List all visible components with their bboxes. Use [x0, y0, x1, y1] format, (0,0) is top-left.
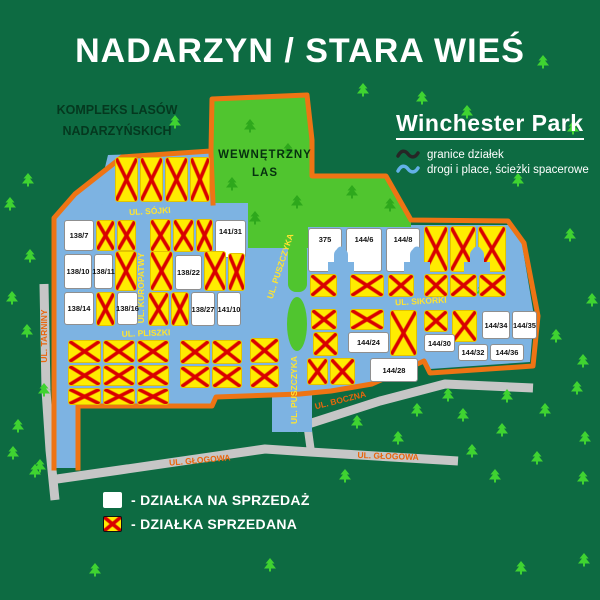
tree-icon [550, 329, 562, 343]
tree-icon [357, 83, 369, 97]
plot-sold [150, 219, 171, 252]
page-title: NADARZYN / STARA WIEŚ [0, 32, 600, 71]
tree-icon [416, 91, 428, 105]
plot-sold [424, 310, 448, 332]
estate-map: 138/7141/31138/10138/11138/22138/14138/1… [0, 0, 600, 600]
plot-138-7: 138/7 [64, 220, 94, 251]
plot-sold [478, 226, 506, 272]
tree-icon [457, 408, 469, 422]
plot-144-28: 144/28 [370, 358, 418, 382]
park-name: Winchester Park [396, 110, 584, 140]
tree-icon [22, 173, 34, 187]
plot-144-24: 144/24 [348, 332, 389, 353]
plot-sold [165, 157, 188, 202]
legend-boundaries-label: granice działek [427, 149, 504, 161]
plot-sold [350, 274, 384, 297]
plot-sold [250, 338, 279, 363]
sold-swatch [103, 516, 122, 532]
plot-sold [212, 366, 242, 388]
plot-sold [115, 251, 137, 291]
plot-sold [148, 292, 169, 326]
plot-sold [479, 274, 506, 297]
plot-sold [68, 388, 101, 405]
plot-144-35: 144/35 [512, 311, 537, 339]
plot-144-8: 144/8 [386, 228, 420, 272]
forest-complex-label: KOMPLEKS LASÓW NADARZYŃSKICH [22, 100, 212, 143]
tree-icon [411, 403, 423, 417]
plot-sold [68, 365, 101, 386]
tree-icon [351, 415, 363, 429]
tree-icon [12, 419, 24, 433]
plot-sold [450, 274, 477, 297]
sold-label: - DZIAŁKA SPRZEDANA [131, 516, 297, 532]
plot-sold [140, 157, 163, 202]
plot-sold [388, 274, 414, 297]
tree-icon [579, 431, 591, 445]
tree-icon [264, 558, 276, 572]
tree-icon [24, 249, 36, 263]
plot-138-10: 138/10 [64, 254, 92, 289]
plot-sold [330, 358, 355, 385]
plot-144-30: 144/30 [424, 334, 455, 352]
plot-sold [307, 358, 328, 385]
plot-sold [350, 309, 384, 330]
tree-icon [539, 403, 551, 417]
plot-sold [137, 340, 169, 363]
legend-row-boundaries: granice działek [396, 149, 596, 161]
plot-sold [311, 309, 337, 330]
plot-sold [96, 220, 115, 251]
plot-sold [103, 388, 135, 405]
plot-sold [228, 253, 245, 291]
plot-sold [171, 292, 189, 326]
tree-icon [442, 388, 454, 402]
plot-sold [390, 310, 417, 356]
plot-138-14: 138/14 [64, 292, 94, 325]
plot-sold [452, 310, 477, 342]
plot-sold [204, 251, 226, 291]
plot-144-6: 144/6 [346, 228, 382, 272]
park-legend-panel: Winchester Park granice działek drogi i … [396, 110, 596, 179]
plot-sold [96, 292, 115, 326]
tree-icon [89, 563, 101, 577]
tree-icon [466, 444, 478, 458]
plot-sold [180, 366, 210, 388]
tree-icon [4, 197, 16, 211]
plot-144-36: 144/36 [490, 344, 524, 361]
plot-138-11: 138/11 [94, 254, 113, 289]
plot-sold [212, 340, 242, 364]
tree-icon [578, 553, 590, 567]
tree-icon [339, 469, 351, 483]
plot-138-27: 138/27 [191, 292, 215, 326]
tree-icon [531, 451, 543, 465]
tree-icon [515, 561, 527, 575]
plot-144-32: 144/32 [458, 344, 488, 361]
tree-icon [564, 228, 576, 242]
boundary-squiggle-icon [396, 149, 420, 161]
plot-sold [313, 332, 338, 356]
plot-sold [250, 365, 279, 388]
tree-icon [6, 291, 18, 305]
legend-sold-row: - DZIAŁKA SPRZEDANA [103, 516, 310, 532]
tree-icon [577, 354, 589, 368]
plot-sold [137, 365, 169, 386]
plot-375: 375 [308, 228, 342, 272]
plot-sold [424, 274, 448, 297]
bottom-legend: - DZIAŁKA NA SPRZEDAŻ - DZIAŁKA SPRZEDAN… [103, 492, 310, 540]
legend-row-roads: drogi i place, ścieżki spacerowe [396, 164, 596, 176]
plot-sold [103, 365, 135, 386]
plot-sold [173, 219, 194, 252]
plot-sold [310, 274, 337, 297]
tree-icon [577, 471, 589, 485]
plot-sold [150, 251, 173, 291]
tree-icon [586, 293, 598, 307]
for-sale-swatch [103, 492, 122, 508]
road-glogowa [57, 449, 458, 479]
tree-icon [21, 324, 33, 338]
plot-sold [117, 220, 136, 251]
plot-141-10: 141/10 [217, 292, 241, 326]
plot-sold [103, 340, 135, 363]
plot-sold [115, 157, 138, 202]
plot-144-34: 144/34 [482, 311, 510, 339]
inner-forest-label: WEWNĘTRZNY LAS [210, 146, 320, 183]
plot-138-16: 138/16 [117, 292, 138, 325]
legend-for-sale-row: - DZIAŁKA NA SPRZEDAŻ [103, 492, 310, 508]
tree-icon [496, 423, 508, 437]
plot-138-22: 138/22 [175, 255, 202, 290]
for-sale-label: - DZIAŁKA NA SPRZEDAŻ [131, 492, 310, 508]
plot-sold [180, 340, 210, 364]
plot-sold [137, 388, 169, 405]
tree-icon [7, 446, 19, 460]
plot-sold [68, 340, 101, 363]
legend-roads-label: drogi i place, ścieżki spacerowe [427, 164, 589, 176]
road-median-island [287, 297, 307, 351]
tree-icon [392, 431, 404, 445]
plot-sold [450, 226, 476, 272]
plot-sold [190, 157, 210, 202]
tree-icon [571, 381, 583, 395]
tree-icon [489, 469, 501, 483]
plot-sold [424, 226, 448, 272]
road-squiggle-icon [396, 164, 420, 176]
plot-sold [196, 219, 213, 252]
